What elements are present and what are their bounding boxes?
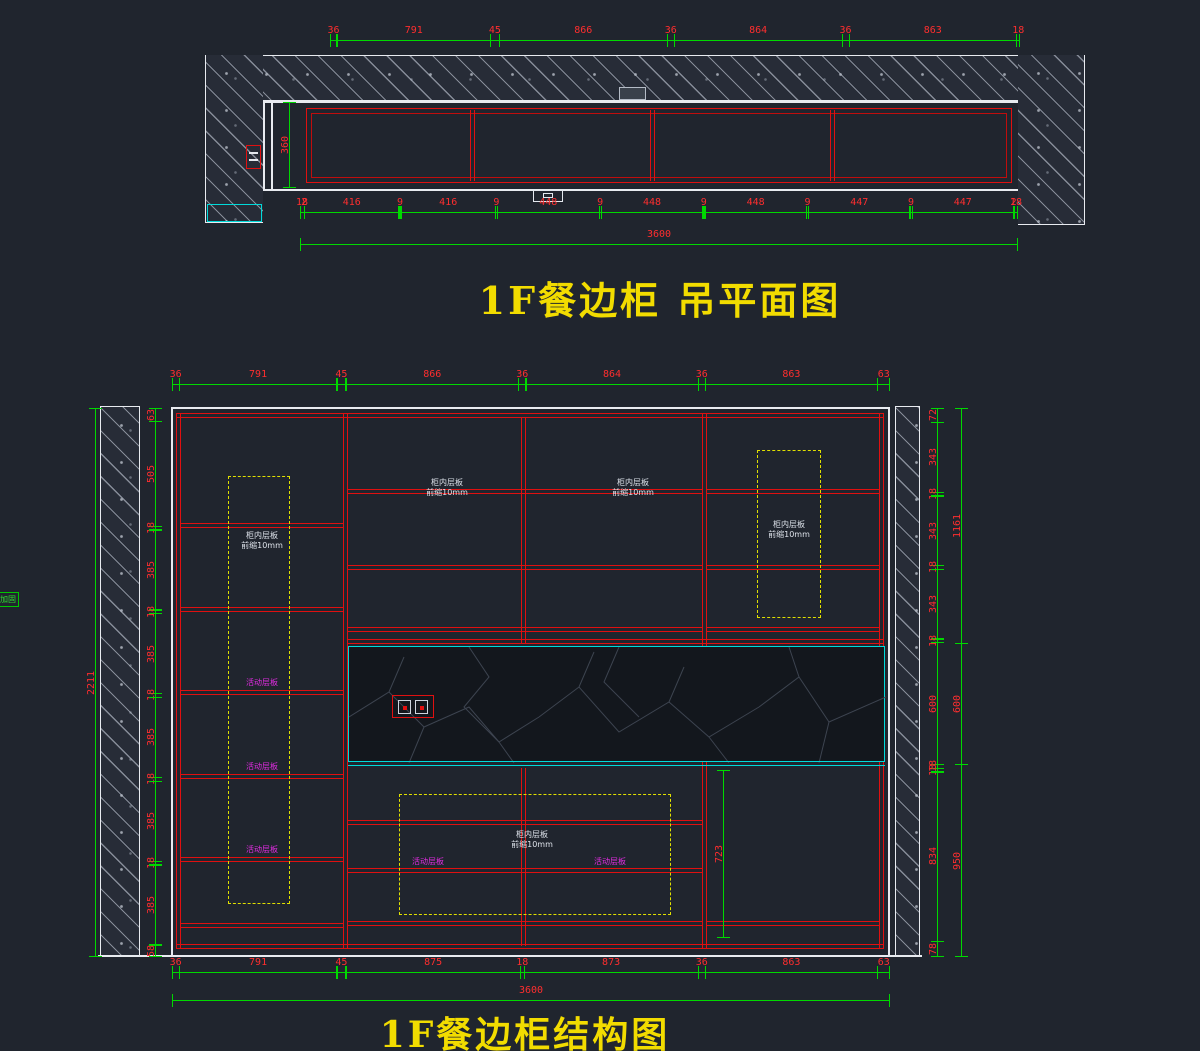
elev-frame-top bbox=[171, 407, 890, 409]
dim-chain-elev-bottom: 3679145875188733686363 bbox=[172, 960, 890, 976]
plan-wall-left bbox=[205, 55, 263, 223]
shelf-note: 柜内层板前缩10mm bbox=[612, 478, 654, 499]
shelf bbox=[707, 627, 879, 632]
dim-chain-elev-right: 72343183431834318600181883478 bbox=[926, 408, 942, 957]
counter-line bbox=[348, 761, 885, 766]
dim-chain-plan-top: 3679145866368643686318 bbox=[330, 28, 1020, 44]
plan-divider-1 bbox=[470, 110, 475, 181]
shelf-note: 柜内层板前缩10mm bbox=[241, 531, 283, 552]
plan-cabinet-front-line bbox=[263, 189, 1018, 191]
dashed-front-lower-mid bbox=[399, 794, 671, 915]
movable-shelf-note: 活动层板 bbox=[246, 679, 278, 687]
dim-elev-niche: 723 bbox=[712, 770, 728, 938]
shelf bbox=[348, 627, 702, 632]
shelf-note: 柜内层板前缩10mm bbox=[511, 830, 553, 851]
upper-mid-divider bbox=[521, 418, 526, 644]
dim-chain-plan-bottom: 182416941694489448944894479447218 bbox=[300, 200, 1018, 216]
movable-shelf-note: 活动层板 bbox=[594, 858, 626, 866]
elev-left-panel bbox=[176, 413, 181, 949]
dim-chain-elev-left: 63505183851838518385183851838558 bbox=[144, 408, 160, 957]
dim-elev-total: 3600 bbox=[172, 988, 890, 1004]
shelf-note: 柜内层板前缩10mm bbox=[426, 478, 468, 499]
plan-wall-right bbox=[1018, 55, 1085, 225]
dim-elev-left-outer: 2211 bbox=[84, 408, 100, 957]
door-symbol bbox=[619, 87, 646, 100]
movable-shelf-note: 活动层板 bbox=[246, 763, 278, 771]
plan-cabinet-side-line bbox=[263, 100, 265, 190]
plan-cabinet-back-line bbox=[263, 100, 1018, 102]
power-outlet bbox=[392, 695, 434, 718]
threshold-symbol bbox=[207, 204, 262, 222]
elev-base-panel bbox=[176, 944, 884, 949]
elev-frame-right bbox=[888, 407, 890, 956]
plan-title: 1F餐边柜 吊平面图 bbox=[330, 270, 990, 325]
shelf bbox=[348, 921, 702, 926]
shelf bbox=[348, 565, 702, 570]
dim-plan-total: 3600 bbox=[300, 232, 1018, 248]
wall-outlet-symbol bbox=[246, 145, 261, 169]
elev-wall-right bbox=[895, 406, 920, 957]
elevation-title: 1F餐边柜结构图 bbox=[290, 1006, 760, 1051]
plan-divider-2 bbox=[650, 110, 655, 181]
upper-cabinet-bottom bbox=[348, 639, 884, 644]
plan-cabinet-side-line2 bbox=[271, 100, 273, 190]
movable-shelf-note: 活动层板 bbox=[246, 846, 278, 854]
dim-chain-elev-right-outer: 1161600950 bbox=[950, 408, 966, 957]
cad-canvas: 3679145866368643686318 18241694169448944… bbox=[0, 0, 1200, 1051]
elev-frame-left bbox=[171, 407, 173, 956]
dim-plan-depth: 360 bbox=[278, 102, 294, 188]
elev-top-panel bbox=[176, 413, 884, 418]
movable-shelf-note: 活动层板 bbox=[412, 858, 444, 866]
dim-chain-elev-top: 3679145866368643686363 bbox=[172, 372, 890, 388]
plan-divider-3 bbox=[830, 110, 835, 181]
shelf-note: 柜内层板前缩10mm bbox=[768, 520, 810, 541]
shelf bbox=[707, 921, 879, 926]
shelf bbox=[181, 923, 343, 928]
elev-wall-left bbox=[100, 406, 140, 957]
edge-note: 加固 bbox=[0, 592, 19, 607]
plan-carcass-inner bbox=[311, 113, 1007, 178]
